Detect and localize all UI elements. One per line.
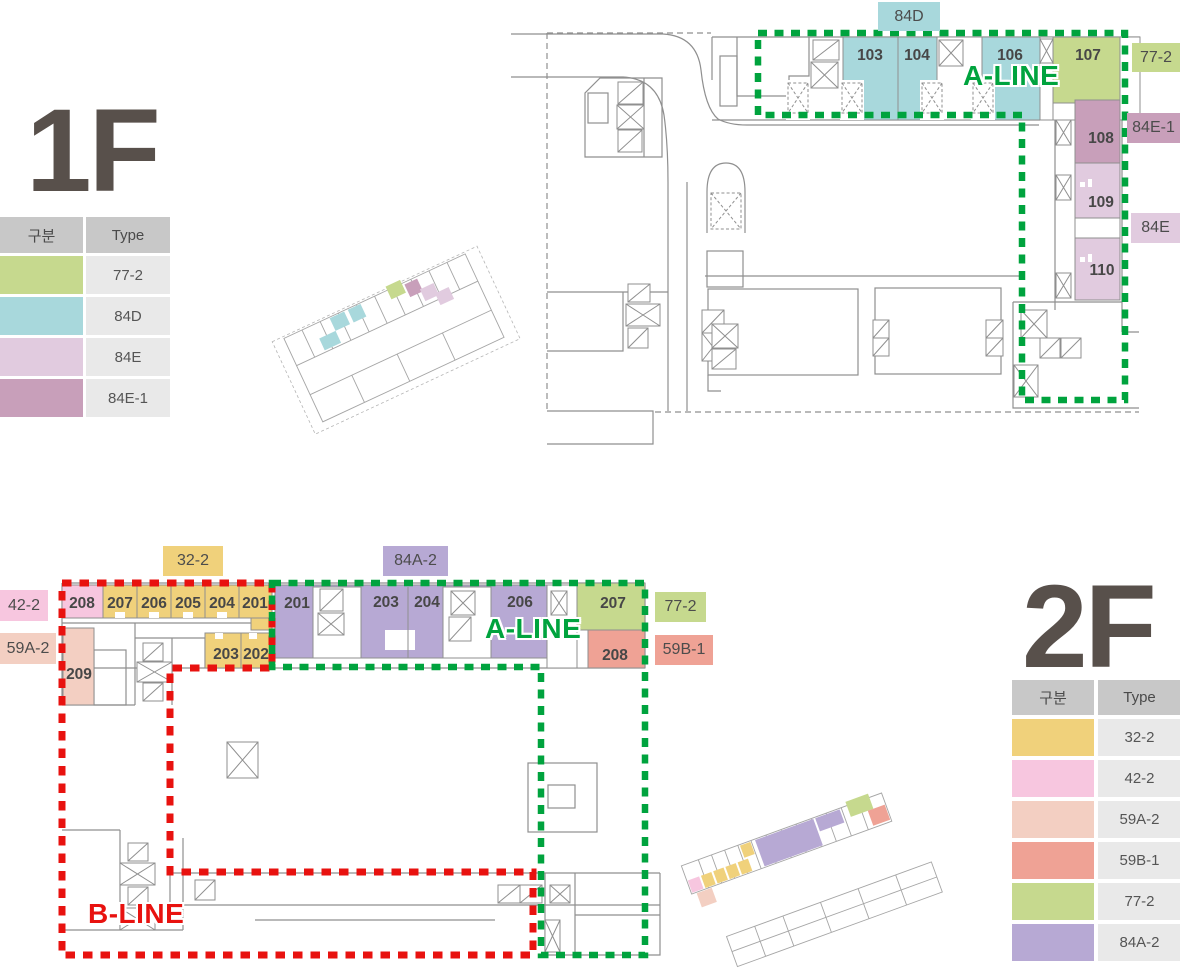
stair-box-icon [618, 130, 642, 152]
minimap-84d-cell [319, 331, 341, 350]
minimap-84a-cell [815, 809, 844, 831]
minimap-32-cell [738, 859, 753, 875]
elevator-x-icon [811, 62, 838, 88]
chip-84a-2: 84A-2 [383, 546, 448, 576]
floor2-title: 2F [1022, 568, 1154, 686]
floor1-minimap [278, 233, 513, 433]
unit-206a-label: 206 [507, 594, 533, 611]
chip-59a-2: 59A-2 [0, 633, 56, 664]
chip-32-2: 32-2 [163, 546, 223, 576]
unit-206b-label: 206 [141, 595, 167, 612]
legend-swatch-84a-2 [1012, 924, 1094, 961]
stair-box-icon [628, 284, 650, 302]
unit-110-label: 110 [1089, 262, 1114, 279]
legend-swatch-84e [0, 338, 83, 376]
legend-type-42-2: 42-2 [1098, 760, 1180, 797]
legend-swatch-77-2 [0, 256, 83, 294]
unit-207a-label: 207 [600, 595, 626, 612]
stair-box-icon [1040, 338, 1060, 358]
elevator-x-icon [120, 863, 155, 885]
unit-104-label: 104 [904, 47, 930, 64]
chip-84e-1: 84E-1 [1127, 113, 1180, 143]
elevator-x-icon [939, 40, 963, 66]
stair-box-icon [1061, 338, 1081, 358]
dashed-x-box-icon [711, 193, 741, 229]
stair-box-icon [873, 320, 889, 338]
unit-207b-label: 207 [107, 595, 133, 612]
floor1-aline-label: A-LINE [963, 60, 1059, 92]
unit-201a-label: 201 [284, 595, 310, 612]
legend-swatch-42-2 [1012, 760, 1094, 797]
floor2-aline-label: A-LINE [485, 613, 581, 645]
legend-swatch-32-2 [1012, 719, 1094, 756]
unit-103-label: 103 [857, 47, 883, 64]
legend-swatch-77-2 [1012, 883, 1094, 920]
legend-header-category: 구분 [1012, 680, 1094, 715]
legend-header-category: 구분 [0, 217, 83, 253]
legend-header-type: Type [86, 217, 170, 253]
elevator-x-icon [1056, 175, 1071, 200]
minimap-32-cell [725, 863, 740, 879]
unit-202b-label: 202 [243, 646, 269, 663]
stair-box-icon [143, 643, 163, 661]
unit-109-label: 109 [1088, 194, 1114, 211]
floor1-legend: 구분 Type 77-2 84D 84E 84E-1 [0, 217, 170, 417]
stair-box-icon [320, 589, 343, 611]
unit-204b-label: 204 [209, 595, 235, 612]
stair-box-icon [986, 338, 1003, 356]
stair-box-icon [143, 683, 163, 701]
elevator-x-icon [550, 885, 570, 903]
floor1-title: 1F [26, 92, 158, 210]
unit-204a-label: 204 [414, 594, 440, 611]
legend-type-32-2: 32-2 [1098, 719, 1180, 756]
elevator-x-icon [712, 324, 738, 348]
legend-type-84e-1: 84E-1 [86, 379, 170, 417]
unit-201b-label: 201 [242, 595, 268, 612]
elevator-x-icon [1014, 365, 1038, 397]
elevator-x-icon [617, 105, 644, 129]
chip-59b-1: 59B-1 [655, 635, 713, 665]
legend-swatch-84d [0, 297, 83, 335]
unit-209-label: 209 [66, 666, 92, 683]
chip-42-2: 42-2 [0, 590, 48, 621]
chip-77-2-2f: 77-2 [655, 592, 706, 622]
legend-type-84d: 84D [86, 297, 170, 335]
unit-203b-label: 203 [213, 646, 239, 663]
elevator-x-icon [545, 920, 560, 952]
core-cell [1075, 218, 1120, 238]
floor2-minimap [678, 773, 943, 970]
legend-type-59a-2: 59A-2 [1098, 801, 1180, 838]
unit-205b-label: 205 [175, 595, 201, 612]
elevator-x-icon [318, 613, 344, 635]
elevator-x-icon [1056, 120, 1071, 145]
unit-203a-label: 203 [373, 594, 399, 611]
elevator-x-icon [451, 591, 475, 615]
legend-swatch-59a-2 [1012, 801, 1094, 838]
dashed-x-box-icon [922, 83, 942, 113]
stair-box-icon [813, 40, 839, 60]
floorplan-page: 1F 구분 Type 77-2 84D 84E 84E-1 [0, 0, 1180, 970]
chip-84d: 84D [878, 2, 940, 31]
stair-box-icon [498, 885, 520, 903]
minimap-84a-cell [755, 819, 823, 867]
legend-type-84a-2: 84A-2 [1098, 924, 1180, 961]
legend-type-77-2: 77-2 [1098, 883, 1180, 920]
stair-box-icon [628, 328, 648, 348]
legend-type-84e: 84E [86, 338, 170, 376]
elevator-x-icon [626, 304, 660, 326]
unit-208b-label: 208 [69, 595, 95, 612]
floor2-bline-label: B-LINE [88, 898, 184, 930]
unit-107-label: 107 [1075, 47, 1101, 64]
minimap-84d-cell [330, 311, 350, 330]
elevator-x-icon [1056, 273, 1071, 298]
dashed-x-box-icon [788, 83, 808, 113]
legend-swatch-59b-1 [1012, 842, 1094, 879]
stair-box-icon [712, 349, 736, 369]
stair-box-icon [195, 880, 215, 900]
stair-box-icon [986, 320, 1003, 338]
stair-box-icon [128, 843, 148, 861]
elevator-x-icon [551, 591, 567, 615]
dashed-x-box-icon [842, 83, 862, 113]
legend-type-59b-1: 59B-1 [1098, 842, 1180, 879]
stair-box-icon [873, 338, 889, 356]
unit-208a-label: 208 [602, 647, 628, 664]
minimap-32-cell [713, 868, 728, 884]
floor2-legend: 구분 Type 32-2 42-2 59A-2 59B-1 77-2 84A-2 [1012, 680, 1180, 961]
chip-77-2-1f: 77-2 [1132, 43, 1180, 72]
stair-box-icon [618, 82, 643, 104]
stair-box-icon [449, 617, 471, 641]
legend-header-type: Type [1098, 680, 1180, 715]
unit-108-label: 108 [1088, 130, 1114, 147]
courtyard-x-box-icon [227, 742, 258, 778]
chip-84e: 84E [1131, 213, 1180, 243]
legend-swatch-84e-1 [0, 379, 83, 417]
legend-type-77-2: 77-2 [86, 256, 170, 294]
